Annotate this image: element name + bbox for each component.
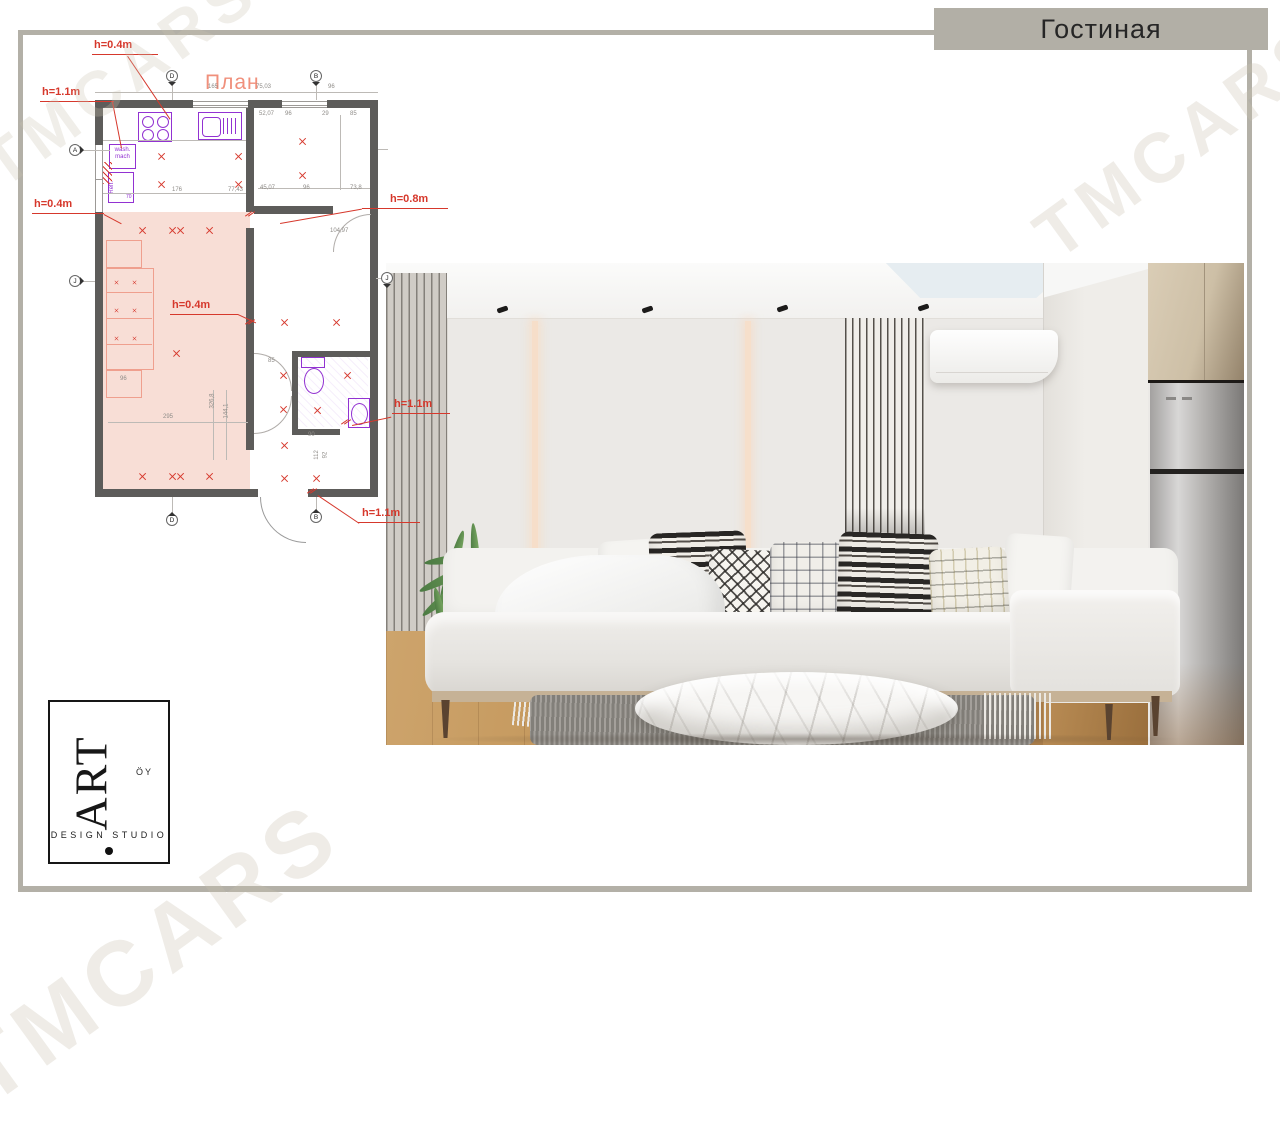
cabinet-seam	[1204, 263, 1205, 382]
mini-light-symbol	[132, 280, 137, 285]
plan-bathroom-wall	[292, 429, 340, 435]
mini-light-symbol	[132, 308, 137, 313]
plan-sofa-line	[106, 318, 152, 319]
annotation-underline	[392, 413, 450, 414]
ceiling-light-symbol	[138, 226, 147, 235]
ceiling-light-symbol	[280, 474, 289, 483]
dim-label: 29	[322, 111, 329, 117]
logo-brand: ART	[69, 735, 115, 830]
red-tick	[248, 210, 256, 218]
bathroom-door-arc	[254, 396, 292, 434]
bathroom-tile-hatch	[298, 357, 368, 427]
plan-wall	[254, 206, 333, 214]
red-tick	[344, 418, 352, 426]
plan-wall	[95, 489, 258, 497]
dim-label: 144,1	[224, 403, 230, 418]
kitchen-cabinets	[1148, 263, 1244, 382]
fridge-divider	[1150, 469, 1244, 474]
ceiling-light-symbol	[205, 472, 214, 481]
kitchen-sink	[198, 112, 242, 140]
grid-marker: J	[381, 272, 393, 284]
ceiling-light-symbol	[157, 180, 166, 189]
dim-label: 75,03	[256, 84, 271, 90]
annotation-leader	[127, 56, 171, 120]
ceiling-light-symbol	[332, 318, 341, 327]
dim-label: 45,07	[260, 185, 275, 191]
ceiling-light-symbol	[176, 472, 185, 481]
dim-label: 326,8	[210, 393, 216, 408]
dim-label: 85	[350, 111, 357, 117]
pillow-plaid-1	[770, 542, 843, 623]
window	[282, 101, 327, 108]
dim-label: 92	[322, 452, 328, 459]
ceiling-light-symbol	[280, 441, 289, 450]
fridge-handle	[1166, 397, 1176, 400]
window	[95, 145, 103, 212]
plan-console-outline	[106, 370, 142, 398]
dim-label: 96	[328, 84, 335, 90]
annotation-underline	[32, 213, 104, 214]
height-annotation: h=1.1m	[362, 508, 400, 519]
height-annotation: h=0.4m	[34, 199, 72, 210]
annotation-underline	[358, 522, 420, 523]
rug-fringe	[984, 693, 1054, 739]
air-conditioner	[930, 330, 1058, 383]
interior-render	[386, 263, 1244, 745]
plan-wall	[95, 212, 103, 497]
washing-machine-label: wash. mach	[110, 145, 135, 162]
mini-light-symbol	[132, 336, 137, 341]
ceiling-light-symbol	[313, 406, 322, 415]
grid-line	[378, 149, 388, 150]
grid-marker-arrow	[168, 82, 176, 90]
frame-bottom	[18, 886, 1252, 892]
grid-marker-arrow	[168, 508, 176, 516]
pillow-aztec-2	[836, 531, 938, 624]
sink-drainer	[223, 118, 239, 134]
ceiling-light-symbol	[298, 171, 307, 180]
plan-wall	[248, 100, 282, 108]
dim-line	[103, 193, 246, 194]
ceiling-light-symbol	[138, 472, 147, 481]
mini-light-symbol	[114, 336, 119, 341]
dim-line	[226, 390, 227, 460]
entry-door-arc	[260, 497, 306, 543]
plan-sofa-line	[106, 292, 152, 293]
height-annotation: h=1.1m	[394, 399, 432, 410]
dim-label: 77,43	[228, 187, 243, 193]
ceiling-light-symbol	[234, 152, 243, 161]
refrigerator-dim: 70	[126, 195, 132, 201]
plan-sofa-line	[106, 344, 152, 345]
annotation-leader	[112, 102, 122, 148]
dim-line	[108, 422, 248, 423]
ceiling-light-symbol	[279, 371, 288, 380]
logo-subtitle: DESIGN STUDIO	[50, 831, 168, 840]
ceiling-light-symbol	[312, 474, 321, 483]
dim-label: 165	[208, 84, 218, 90]
dim-label: 112	[314, 450, 320, 460]
red-tick	[310, 487, 318, 495]
pillow-plaid-2	[928, 546, 1010, 622]
grid-marker: D	[166, 70, 178, 82]
ceiling-light-symbol	[172, 349, 181, 358]
logo-dot	[105, 847, 113, 855]
dim-label: 85	[268, 358, 275, 364]
annotation-underline	[40, 101, 114, 102]
grid-marker-arrow	[80, 146, 88, 154]
dim-label: 90	[308, 432, 315, 438]
dim-label: 96	[120, 376, 127, 382]
dim-label: 96	[303, 185, 310, 191]
mini-light-symbol	[114, 280, 119, 285]
plan-wall	[246, 228, 254, 450]
height-annotation: h=0.8m	[390, 194, 428, 205]
annotation-underline	[92, 54, 158, 55]
mini-light-symbol	[114, 308, 119, 313]
sofa-armrest-right	[1010, 590, 1180, 696]
grid-marker-arrow	[383, 284, 391, 292]
dim-label: 73,8	[350, 185, 362, 191]
sink-basin	[202, 117, 221, 137]
plan-wall	[370, 100, 378, 497]
annotation-underline	[170, 314, 238, 315]
plan-side-table-outline	[106, 240, 142, 268]
dim-label: 52,07	[259, 111, 274, 117]
ceiling-light-symbol	[298, 137, 307, 146]
height-annotation: h=0.4m	[94, 40, 132, 51]
fridge-handle	[1182, 397, 1192, 400]
washing-machine: wash. mach	[109, 144, 136, 169]
ac-vent-line	[936, 372, 1048, 373]
dim-label: 295	[163, 414, 173, 420]
ceiling-light-symbol	[157, 152, 166, 161]
dim-label: 176	[172, 187, 182, 193]
grid-marker-arrow	[312, 505, 320, 513]
height-annotation: h=0.4m	[172, 300, 210, 311]
dim-line	[340, 115, 341, 190]
ceiling-light-symbol	[343, 371, 352, 380]
radiator-hatch	[103, 162, 112, 184]
ceiling-light-symbol	[205, 226, 214, 235]
window	[193, 101, 248, 108]
grid-marker: B	[310, 70, 322, 82]
plan-wall	[95, 100, 103, 145]
plan-wall	[246, 108, 254, 212]
burner	[142, 116, 154, 128]
logo-suffix: ÖY	[136, 768, 153, 777]
ceiling-light-symbol	[176, 226, 185, 235]
frame-right	[1247, 50, 1252, 886]
dim-label: 104,97	[330, 228, 348, 234]
dim-line	[103, 140, 246, 141]
dim-line	[95, 92, 378, 93]
page-title: Гостиная	[1040, 14, 1161, 44]
studio-logo: ART ÖY DESIGN STUDIO	[48, 700, 170, 864]
dim-label: 96	[285, 111, 292, 117]
ceiling-light-symbol	[280, 318, 289, 327]
annotation-underline	[362, 208, 448, 209]
grid-marker-arrow	[80, 277, 88, 285]
title-banner: Гостиная	[934, 8, 1268, 50]
height-annotation: h=1.1m	[42, 87, 80, 98]
sofa-shadow	[426, 733, 1186, 745]
grid-marker-arrow	[312, 82, 320, 90]
ceiling-light-symbol	[279, 405, 288, 414]
